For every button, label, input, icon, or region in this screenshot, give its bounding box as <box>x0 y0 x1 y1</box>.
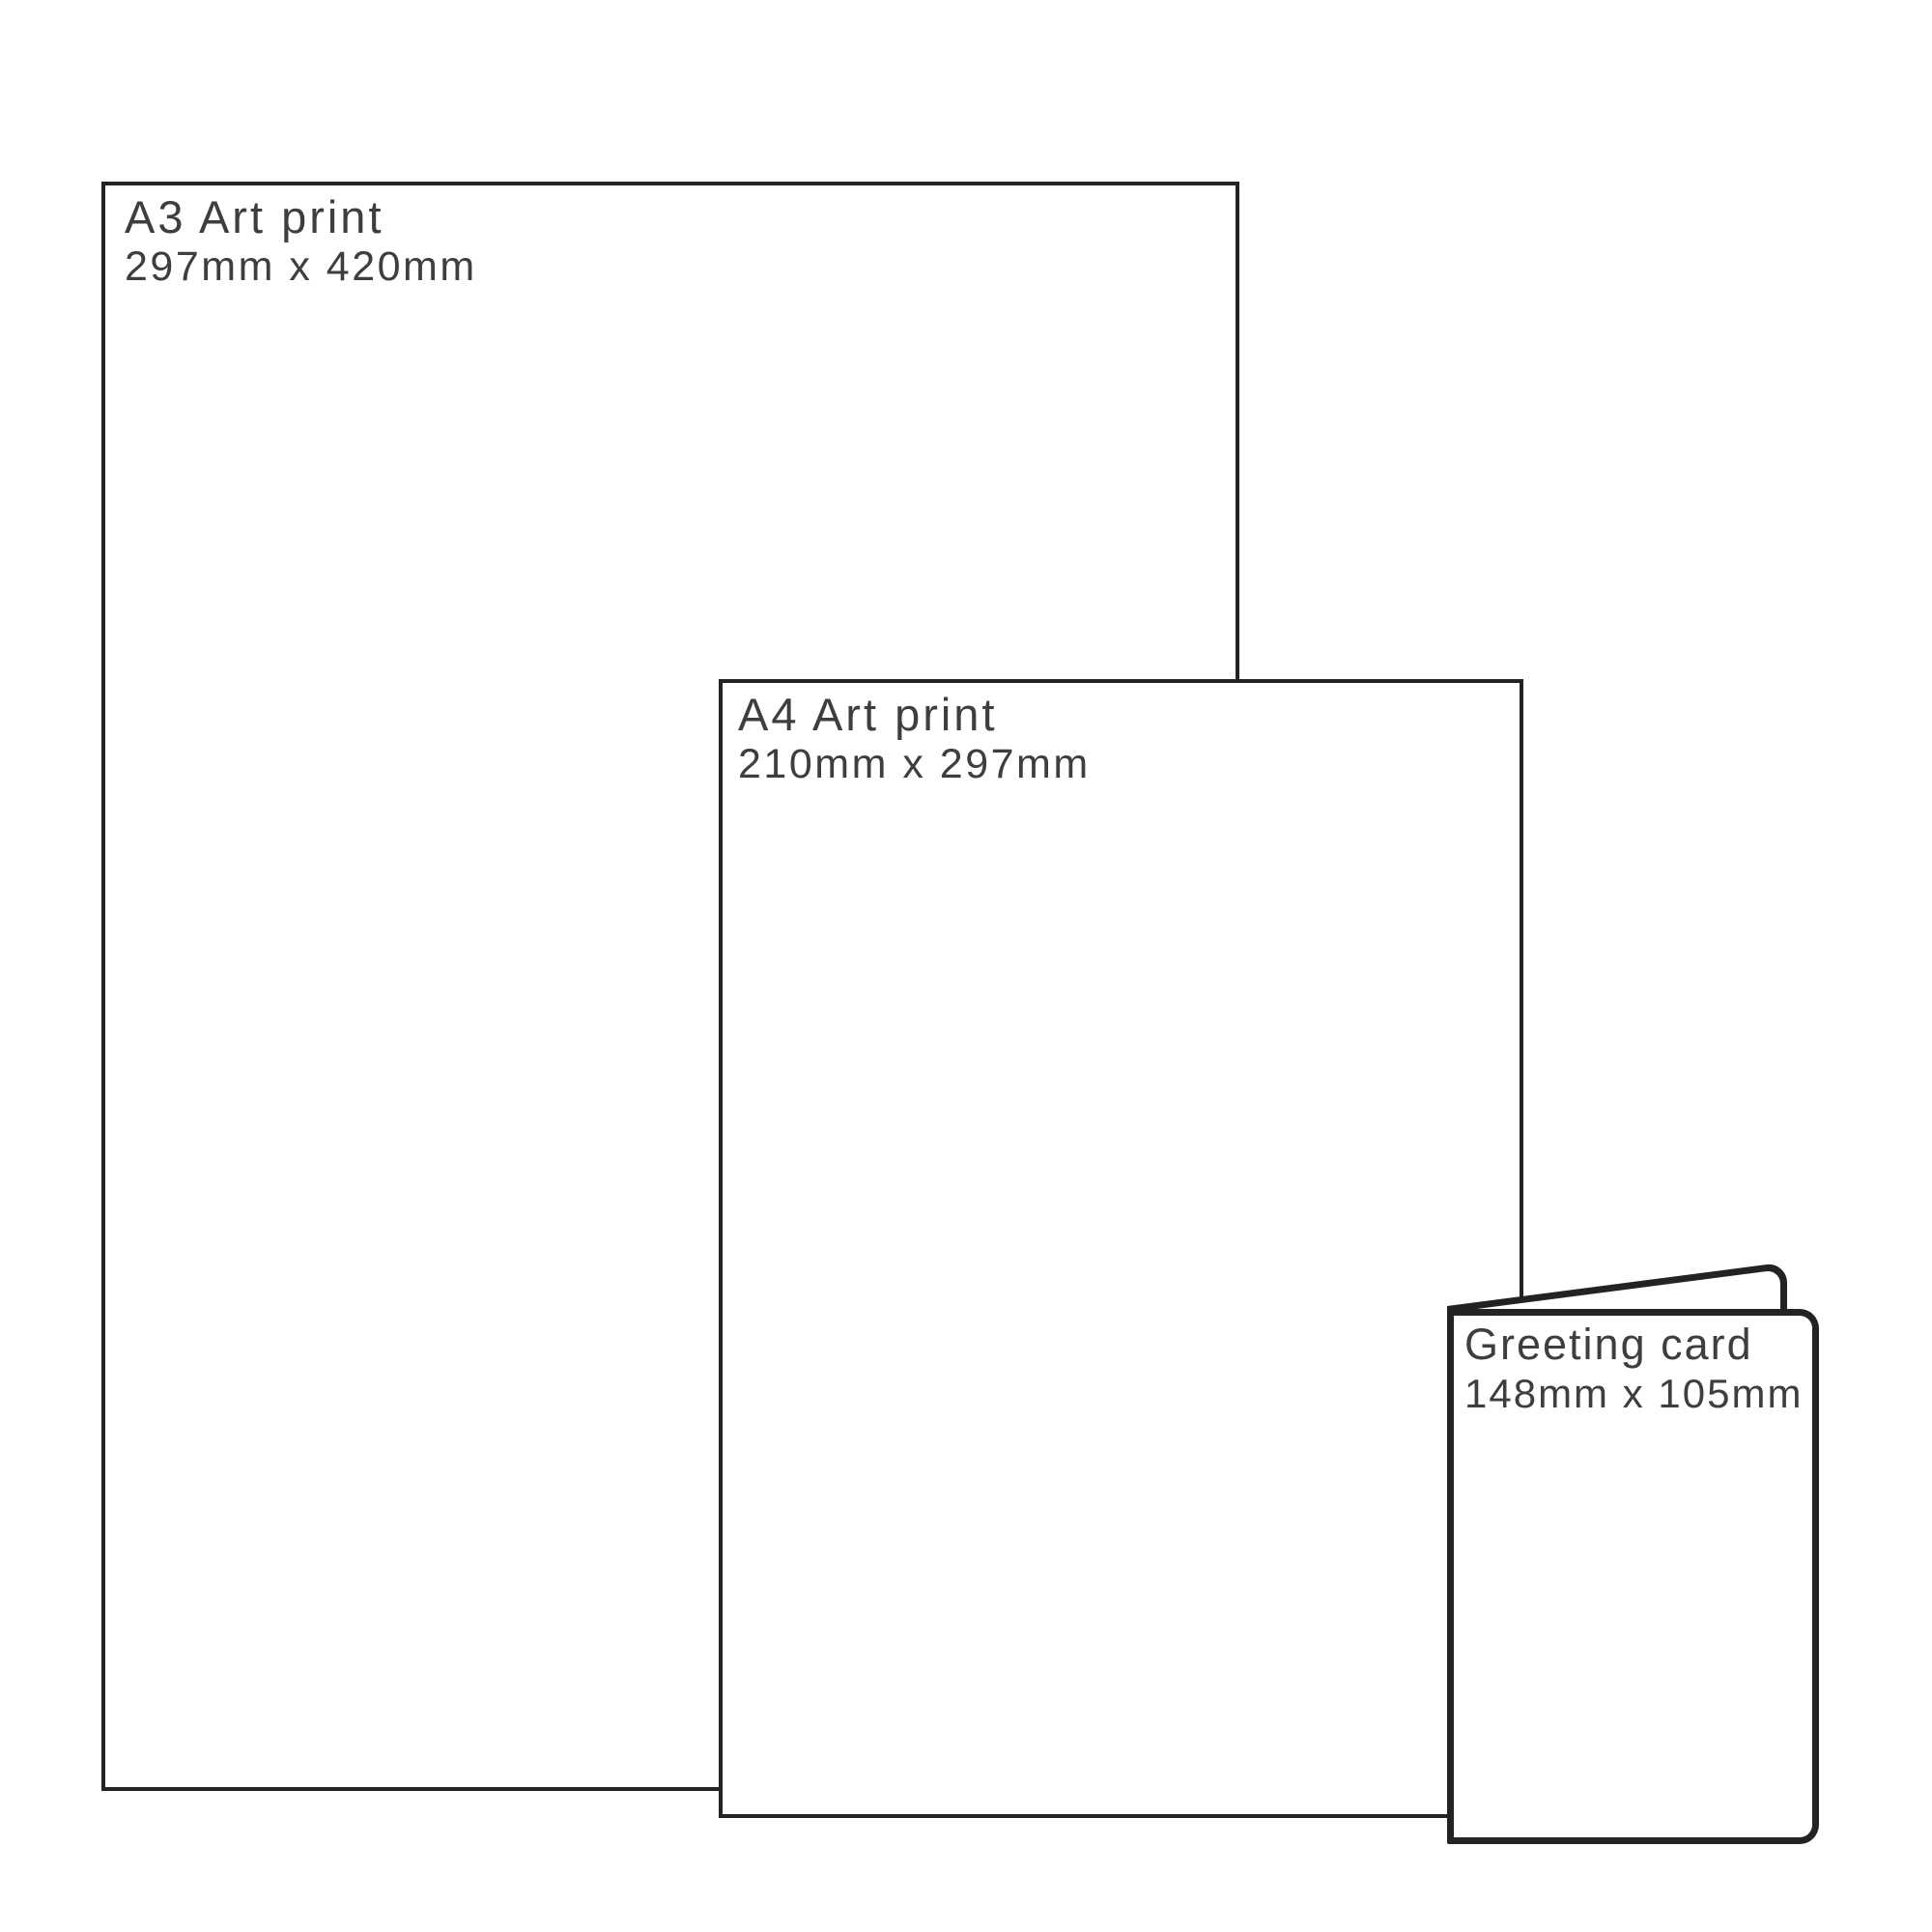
greeting-card-title: Greeting card <box>1464 1318 1803 1371</box>
a4-art-print-sheet: A4 Art print 210mm x 297mm <box>719 679 1523 1818</box>
a3-dimensions: 297mm x 420mm <box>125 243 477 290</box>
greeting-card-dimensions: 148mm x 105mm <box>1464 1371 1803 1417</box>
a4-dimensions: 210mm x 297mm <box>738 741 1091 787</box>
greeting-card-label: Greeting card 148mm x 105mm <box>1464 1318 1803 1417</box>
size-comparison-diagram: A3 Art print 297mm x 420mm A4 Art print … <box>0 0 1932 1932</box>
a3-title: A3 Art print <box>125 190 477 243</box>
greeting-card-front-panel: Greeting card 148mm x 105mm <box>1447 1309 1819 1844</box>
a4-title: A4 Art print <box>738 688 1091 741</box>
a3-label: A3 Art print 297mm x 420mm <box>125 190 477 290</box>
a4-label: A4 Art print 210mm x 297mm <box>738 688 1091 787</box>
